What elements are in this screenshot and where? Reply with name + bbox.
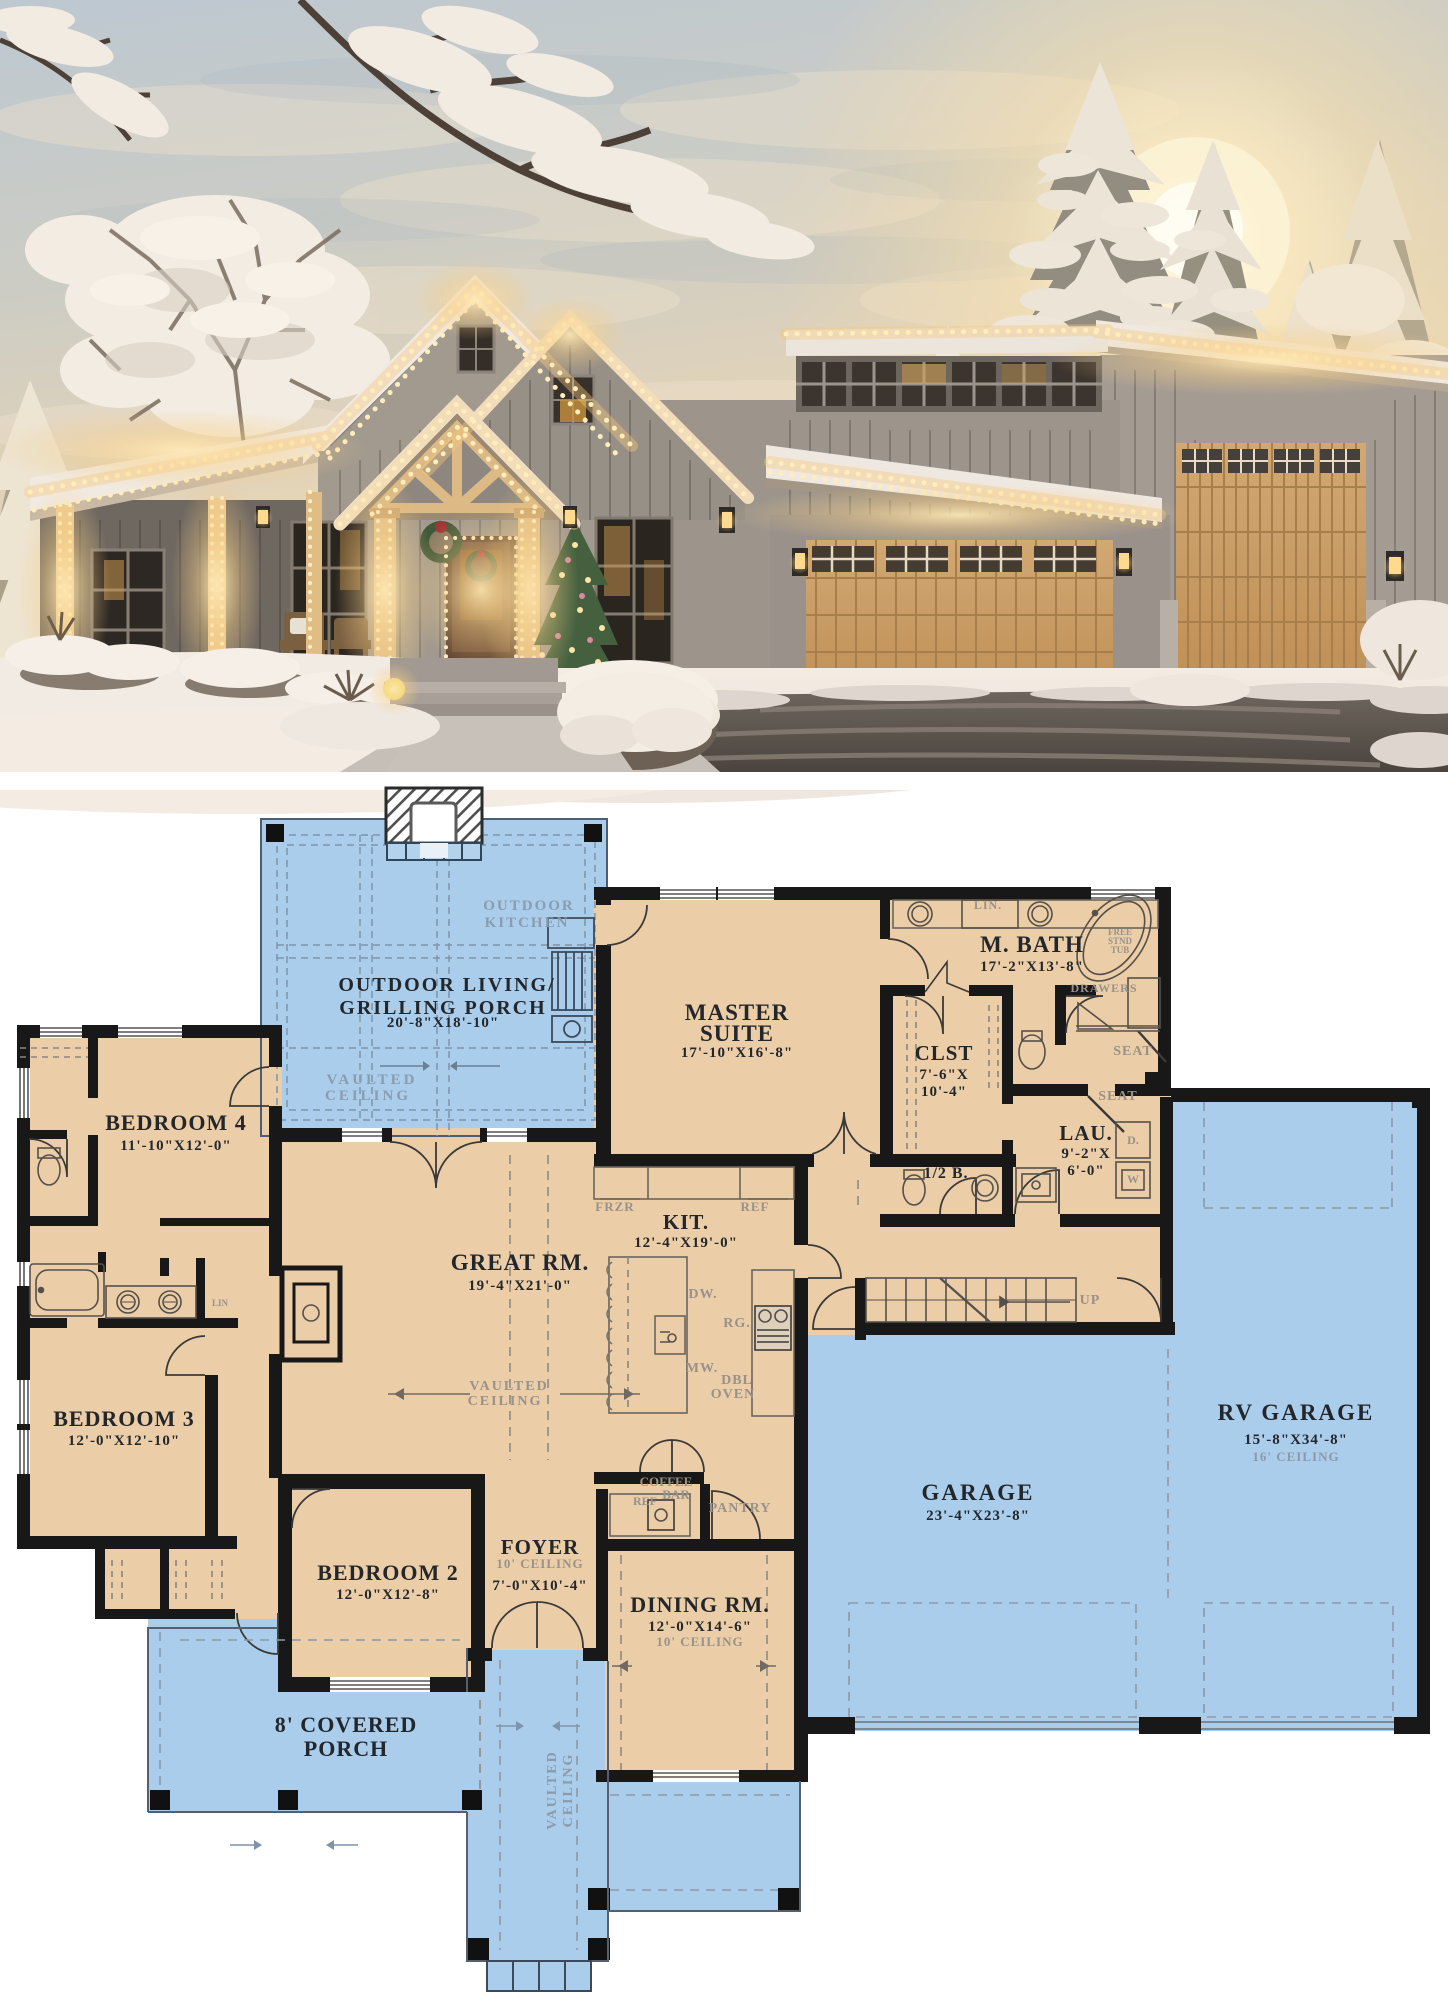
svg-text:15'-8"X34'-8": 15'-8"X34'-8" <box>1244 1432 1348 1448</box>
svg-text:12'-4"X19'-0": 12'-4"X19'-0" <box>634 1235 738 1251</box>
svg-text:RV GARAGE: RV GARAGE <box>1218 1400 1375 1425</box>
svg-text:10' CEILING: 10' CEILING <box>656 1634 743 1649</box>
svg-text:OUTDOOR LIVING/: OUTDOOR LIVING/ <box>338 974 555 996</box>
svg-text:RG.: RG. <box>723 1316 751 1331</box>
svg-text:BAR: BAR <box>662 1487 690 1502</box>
svg-text:8' COVERED: 8' COVERED <box>275 1712 418 1737</box>
svg-text:VAULTED: VAULTED <box>469 1379 548 1394</box>
svg-text:17'-2"X13'-8": 17'-2"X13'-8" <box>980 959 1084 975</box>
svg-text:OVEN: OVEN <box>711 1387 755 1402</box>
svg-text:LAU.: LAU. <box>1059 1121 1113 1145</box>
svg-text:M. BATH: M. BATH <box>980 932 1084 957</box>
svg-text:SEAT: SEAT <box>1113 1044 1153 1059</box>
svg-text:LIN.: LIN. <box>974 898 1002 912</box>
svg-text:7'-0"X10'-4": 7'-0"X10'-4" <box>492 1578 587 1594</box>
svg-text:11'-10"X12'-0": 11'-10"X12'-0" <box>120 1138 232 1154</box>
svg-text:DW.: DW. <box>688 1287 717 1302</box>
svg-text:W: W <box>1127 1172 1139 1186</box>
svg-text:CLST: CLST <box>915 1041 974 1065</box>
svg-text:CEILING: CEILING <box>561 1753 576 1828</box>
svg-text:MW.: MW. <box>686 1361 718 1376</box>
svg-text:12'-0"X14'-6": 12'-0"X14'-6" <box>648 1619 752 1635</box>
svg-text:DINING RM.: DINING RM. <box>630 1592 770 1617</box>
svg-text:BEDROOM 4: BEDROOM 4 <box>105 1110 247 1135</box>
svg-text:7'-6"X: 7'-6"X <box>919 1067 968 1083</box>
svg-text:SUITE: SUITE <box>700 1021 774 1046</box>
svg-text:12'-0"X12'-8": 12'-0"X12'-8" <box>336 1587 440 1603</box>
svg-text:9'-2"X: 9'-2"X <box>1061 1146 1110 1162</box>
svg-text:CEILING: CEILING <box>325 1088 411 1104</box>
svg-text:17'-10"X16'-8": 17'-10"X16'-8" <box>681 1045 793 1061</box>
svg-text:16' CEILING: 16' CEILING <box>1252 1449 1339 1464</box>
svg-text:SEAT: SEAT <box>1098 1089 1138 1104</box>
svg-text:OUTDOOR: OUTDOOR <box>483 898 575 914</box>
svg-text:KIT.: KIT. <box>663 1210 709 1234</box>
svg-text:BEDROOM 2: BEDROOM 2 <box>317 1560 459 1585</box>
svg-text:FRZR: FRZR <box>595 1199 634 1214</box>
svg-text:VAULTED: VAULTED <box>545 1750 560 1829</box>
svg-text:UP: UP <box>1080 1293 1101 1308</box>
svg-text:KITCHEN: KITCHEN <box>485 915 570 931</box>
svg-text:23'-4"X23'-8": 23'-4"X23'-8" <box>926 1508 1030 1524</box>
svg-text:PANTRY: PANTRY <box>709 1501 772 1516</box>
svg-text:CEILING: CEILING <box>468 1394 543 1409</box>
svg-text:12'-0"X12'-10": 12'-0"X12'-10" <box>68 1433 180 1449</box>
svg-text:DRAWERS: DRAWERS <box>1070 981 1137 995</box>
svg-text:6'-0": 6'-0" <box>1067 1163 1105 1179</box>
svg-text:LIN: LIN <box>212 1298 229 1308</box>
svg-text:10'-4": 10'-4" <box>921 1084 967 1100</box>
svg-text:19'-4"X21'-0": 19'-4"X21'-0" <box>468 1278 572 1294</box>
svg-text:REF: REF <box>741 1199 770 1214</box>
svg-text:D.: D. <box>1127 1133 1139 1147</box>
svg-text:PORCH: PORCH <box>304 1736 388 1761</box>
svg-text:10' CEILING: 10' CEILING <box>496 1556 583 1571</box>
svg-text:20'-8"X18'-10": 20'-8"X18'-10" <box>387 1015 499 1031</box>
svg-text:1/2 B.: 1/2 B. <box>923 1165 968 1182</box>
svg-text:GARAGE: GARAGE <box>922 1480 1035 1505</box>
svg-text:DBL: DBL <box>721 1373 753 1388</box>
svg-text:GREAT RM.: GREAT RM. <box>451 1250 590 1275</box>
svg-text:VAULTED: VAULTED <box>326 1072 417 1088</box>
svg-text:TUB: TUB <box>1111 945 1130 955</box>
svg-text:REF: REF <box>633 1494 657 1508</box>
svg-text:BEDROOM 3: BEDROOM 3 <box>53 1406 195 1431</box>
